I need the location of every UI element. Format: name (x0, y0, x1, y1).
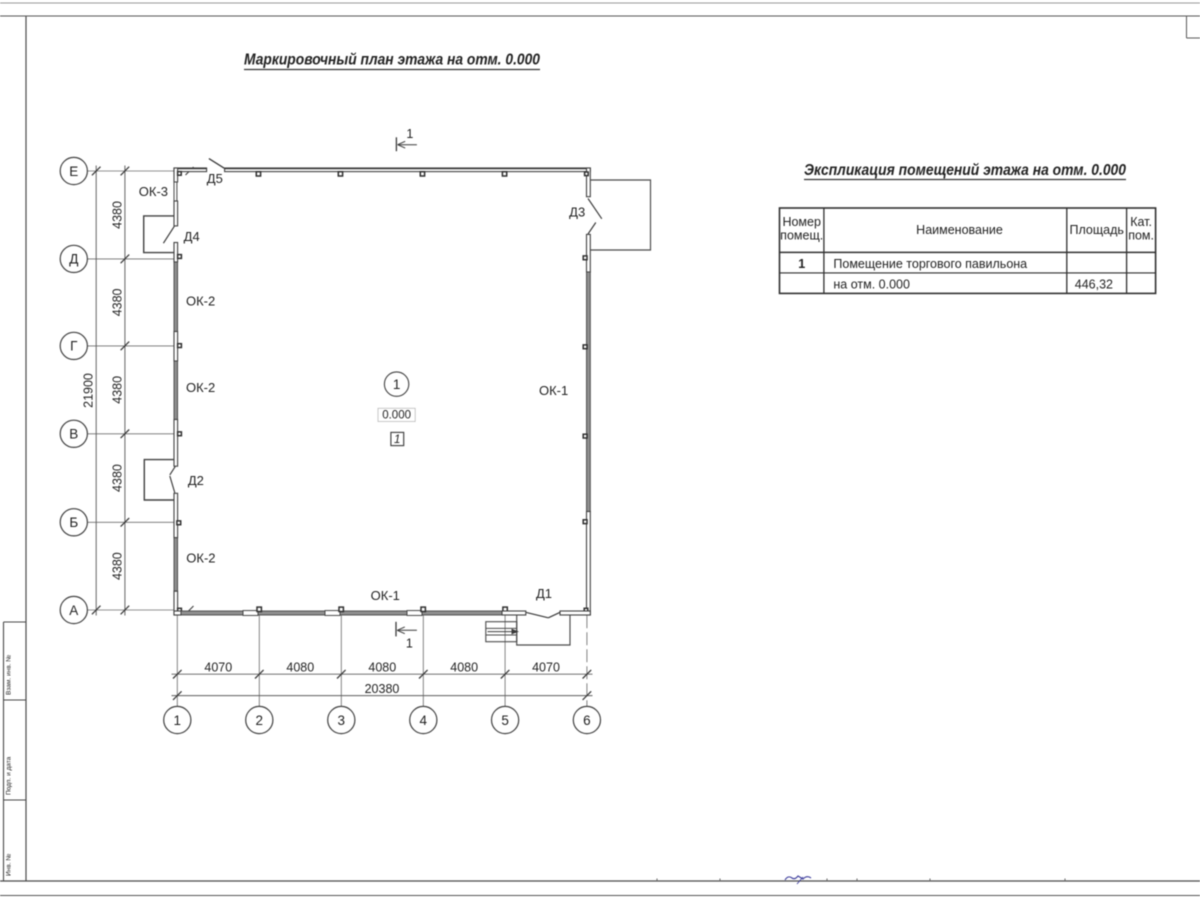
svg-text:5: 5 (501, 713, 509, 728)
svg-text:4080: 4080 (286, 660, 314, 674)
svg-text:Подп. и дата: Подп. и дата (6, 756, 13, 795)
svg-text:Б: Б (69, 515, 78, 530)
svg-text:Наименование: Наименование (916, 223, 1003, 237)
svg-text:1: 1 (174, 713, 182, 728)
svg-text:Номер: Номер (782, 215, 821, 229)
svg-text:446,32: 446,32 (1075, 278, 1113, 292)
svg-text:1: 1 (406, 127, 413, 141)
svg-text:21900: 21900 (82, 373, 96, 408)
svg-text:Д5: Д5 (207, 171, 223, 186)
svg-text:ОК-2: ОК-2 (186, 380, 215, 395)
svg-text:4070: 4070 (532, 660, 560, 674)
svg-text:4380: 4380 (110, 376, 124, 404)
svg-text:4380: 4380 (110, 552, 124, 580)
svg-text:Кат.: Кат. (1130, 215, 1152, 229)
svg-text:Взам. инв. №: Взам. инв. № (6, 655, 13, 695)
svg-text:ОК-3: ОК-3 (139, 184, 168, 199)
svg-text:4080: 4080 (450, 660, 478, 674)
svg-text:1: 1 (394, 434, 400, 446)
svg-text:В: В (69, 427, 78, 442)
svg-text:4: 4 (420, 713, 428, 728)
svg-text:1: 1 (393, 377, 401, 392)
svg-text:ОК-2: ОК-2 (186, 551, 215, 566)
svg-text:0.000: 0.000 (382, 410, 411, 422)
svg-text:на отм. 0.000: на отм. 0.000 (833, 278, 910, 292)
svg-text:Площадь: Площадь (1069, 223, 1123, 237)
svg-text:Экспликация помещений этажа на: Экспликация помещений этажа на отм. 0.00… (804, 162, 1126, 179)
svg-text:4380: 4380 (110, 288, 124, 316)
svg-text:Д3: Д3 (569, 205, 585, 220)
svg-text:20380: 20380 (365, 682, 400, 696)
svg-text:Е: Е (69, 164, 78, 179)
svg-text:А: А (69, 603, 78, 618)
svg-text:1: 1 (406, 637, 413, 651)
svg-text:6: 6 (583, 713, 591, 728)
svg-text:1: 1 (798, 257, 805, 271)
svg-text:Г: Г (70, 339, 78, 354)
svg-text:3: 3 (338, 713, 346, 728)
svg-text:4070: 4070 (204, 660, 232, 674)
svg-text:4380: 4380 (110, 464, 124, 492)
svg-text:Д2: Д2 (188, 473, 204, 488)
svg-text:ОК-2: ОК-2 (186, 293, 215, 308)
svg-text:помещ.: помещ. (780, 229, 823, 243)
svg-text:Д: Д (69, 252, 78, 267)
svg-text:Д4: Д4 (184, 229, 200, 244)
svg-text:ОК-1: ОК-1 (539, 383, 568, 398)
svg-text:ОК-1: ОК-1 (371, 588, 400, 603)
svg-text:4080: 4080 (368, 660, 396, 674)
svg-text:пом.: пом. (1128, 229, 1154, 243)
svg-text:Маркировочный план этажа на от: Маркировочный план этажа на отм. 0.000 (244, 52, 540, 69)
svg-text:Д1: Д1 (536, 586, 552, 601)
svg-text:Инв. №: Инв. № (6, 854, 13, 876)
svg-text:Помещение торгового павильона: Помещение торгового павильона (833, 257, 1027, 271)
svg-text:2: 2 (256, 713, 264, 728)
svg-text:4380: 4380 (110, 201, 124, 229)
